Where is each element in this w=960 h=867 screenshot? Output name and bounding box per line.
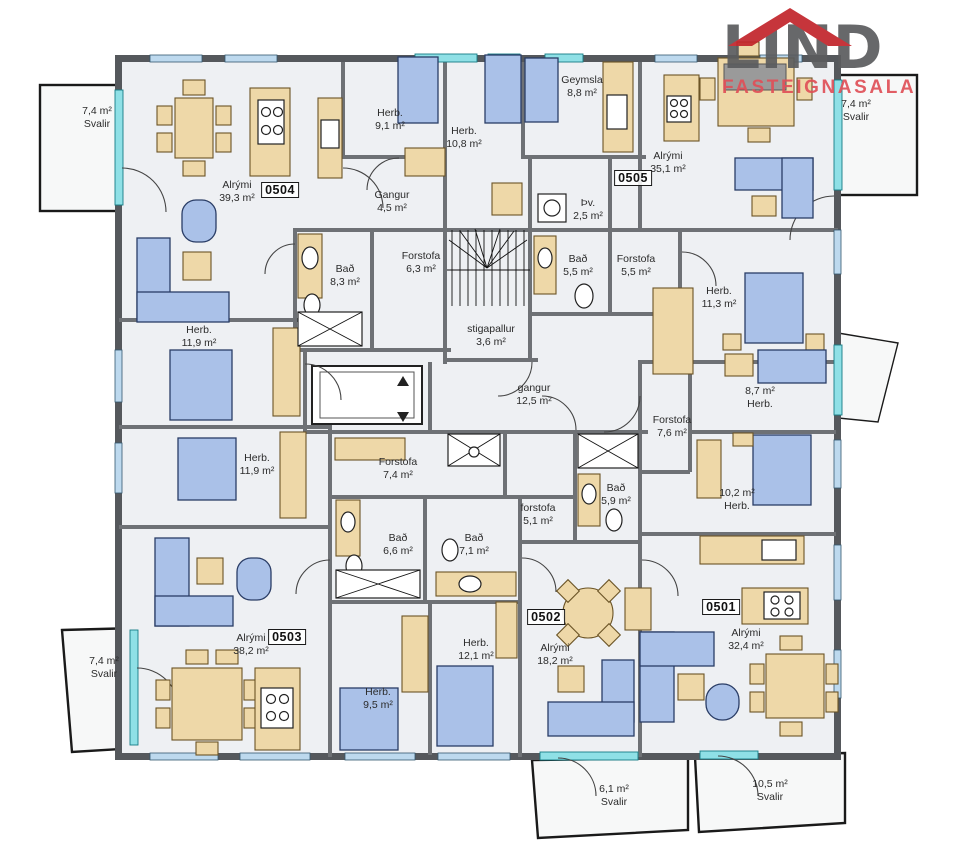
room-label: Alrými35,1 m² xyxy=(650,150,686,176)
room-label: Herb.11,9 m² xyxy=(182,324,217,350)
unit-badge-0505: 0505 xyxy=(614,170,652,186)
room-label: 10,2 m²Herb. xyxy=(719,487,755,513)
unit-badge-0503: 0503 xyxy=(268,629,306,645)
room-label: Bað6,6 m² xyxy=(383,532,413,558)
room-label: Gangur4,5 m² xyxy=(374,189,409,215)
room-label: Forstofa7,4 m² xyxy=(379,456,418,482)
balcony-label: 7,4 m²Svalir xyxy=(841,98,871,124)
unit-badge-0501: 0501 xyxy=(702,599,740,615)
room-label: Herb.10,8 m² xyxy=(446,125,482,151)
room-label: Herb.12,1 m² xyxy=(458,637,494,663)
room-label: stigapallur3,6 m² xyxy=(467,323,515,349)
balcony-label: 7,4 m²Svalir xyxy=(89,655,119,681)
room-label: Forstofa6,3 m² xyxy=(402,250,441,276)
room-label: Bað5,9 m² xyxy=(601,482,631,508)
room-label: Herb.11,9 m² xyxy=(240,452,275,478)
room-label: Herb.9,5 m² xyxy=(363,686,393,712)
room-label: 8,7 m²Herb. xyxy=(745,385,775,411)
room-label: forstofa5,1 m² xyxy=(520,502,555,528)
logo-tagline: FASTEIGNASALA xyxy=(722,77,937,99)
room-label: Bað7,1 m² xyxy=(459,532,489,558)
room-label: Alrými32,4 m² xyxy=(728,627,764,653)
balcony-label: 6,1 m²Svalir xyxy=(599,783,629,809)
room-label: Forstofa7,6 m² xyxy=(653,414,692,440)
room-label: Þv.2,5 m² xyxy=(573,197,603,223)
unit-badge-0504: 0504 xyxy=(261,182,299,198)
balcony-label: 7,4 m²Svalir xyxy=(82,105,112,131)
room-label: Alrými18,2 m² xyxy=(537,642,573,668)
floor-plan-page: 7,4 m²SvalirAlrými39,3 m²Herb.9,1 m²Herb… xyxy=(0,0,960,867)
logo-roof-icon xyxy=(728,6,868,50)
room-label: Herb.11,3 m² xyxy=(702,285,737,311)
room-label: Bað5,5 m² xyxy=(563,253,593,279)
room-label: Geymsla8,8 m² xyxy=(561,74,602,100)
room-label: Alrými38,2 m² xyxy=(233,632,269,658)
lind-logo: LIND FASTEIGNASALA xyxy=(722,20,937,99)
unit-badge-0502: 0502 xyxy=(527,609,565,625)
room-label: gangur12,5 m² xyxy=(516,382,552,408)
room-label: Alrými39,3 m² xyxy=(219,179,255,205)
room-label: Bað8,3 m² xyxy=(330,263,360,289)
balcony-label: 10,5 m²Svalir xyxy=(752,778,788,804)
elevator xyxy=(312,366,422,424)
room-label: Herb.9,1 m² xyxy=(375,107,405,133)
room-label: Forstofa5,5 m² xyxy=(617,253,656,279)
